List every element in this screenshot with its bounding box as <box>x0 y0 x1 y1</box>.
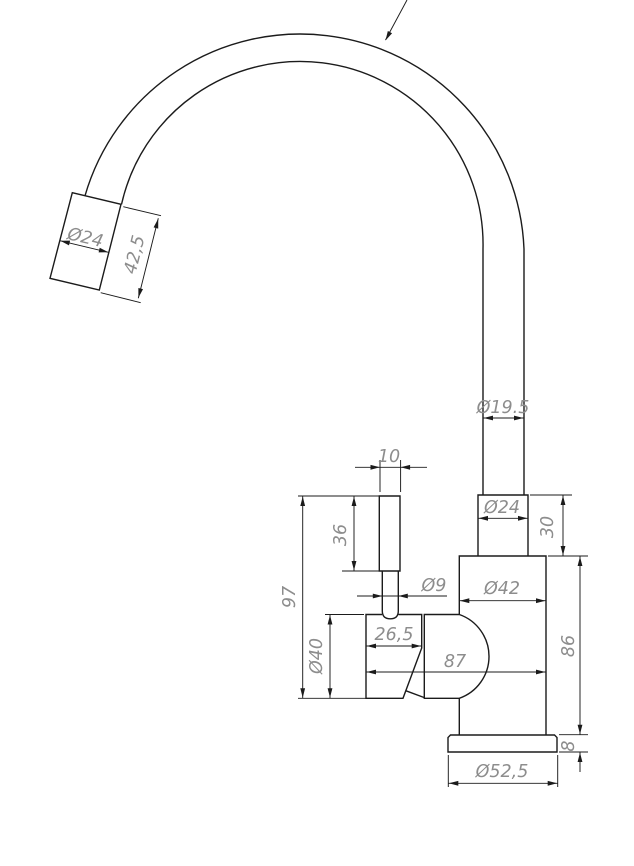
spout-outer-curve <box>85 34 524 495</box>
arrowhead <box>536 598 546 603</box>
arrowhead <box>578 725 583 735</box>
dim-tip-diameter-label: Ø24 <box>64 224 105 252</box>
arrowhead <box>300 497 305 507</box>
arrowhead <box>398 594 408 599</box>
faucet-outline <box>50 34 557 752</box>
arrowhead <box>578 557 583 567</box>
arrowhead <box>578 753 583 763</box>
arrowhead <box>401 465 411 470</box>
spout-inner-curve <box>122 61 484 495</box>
arrowhead <box>300 688 305 698</box>
dim-pin-diameter-label: Ø9 <box>421 576 447 596</box>
faucet-technical-drawing: 10 36 97 Ø40 Ø9 26,5 87 Ø42 Ø24 Ø19.5 30… <box>0 0 634 866</box>
arrowhead <box>352 561 357 571</box>
dim-body-height-label: 86 <box>559 635 579 657</box>
dim-flange-height-label: 8 <box>559 740 579 751</box>
arrowhead <box>536 670 546 675</box>
arrowhead <box>328 615 333 625</box>
dim-lever-width-label: 10 <box>378 447 400 467</box>
arrowhead <box>449 781 459 786</box>
dim-housing-diameter-label: Ø40 <box>307 638 327 675</box>
lever-pin <box>382 571 398 619</box>
dim-tube-diameter-label: Ø19.5 <box>476 398 530 418</box>
base-flange <box>448 735 557 752</box>
arrowhead <box>328 688 333 698</box>
dim-handle-height-label: 97 <box>280 586 300 608</box>
arrowhead <box>561 496 566 506</box>
arrowhead <box>373 594 383 599</box>
arrowhead <box>154 218 161 228</box>
lever-stick <box>379 496 400 571</box>
dim-lever-length-label: 36 <box>331 524 351 546</box>
arrowhead <box>460 598 470 603</box>
leader-arrowhead <box>383 31 392 42</box>
dim-collar-height-label: 30 <box>538 516 558 538</box>
handle-joint-edge <box>406 691 424 698</box>
ext-tip-bottom <box>101 293 141 303</box>
dim-housing-width-label: 26,5 <box>375 625 414 645</box>
extension-lines <box>101 207 588 787</box>
arrowhead <box>548 781 558 786</box>
ext-tip-top <box>123 207 161 216</box>
dim-base-diameter-label: Ø52,5 <box>475 762 529 782</box>
arrowhead <box>352 497 357 507</box>
dim-overall-depth-label: 87 <box>444 652 466 672</box>
arrowhead <box>367 670 377 675</box>
spout-leader <box>383 0 407 42</box>
arrowhead <box>561 546 566 556</box>
dim-body-diameter-label: Ø42 <box>483 579 520 599</box>
dim-collar-diameter-label: Ø24 <box>483 498 520 518</box>
technical-drawing-sheet: 10 36 97 Ø40 Ø9 26,5 87 Ø42 Ø24 Ø19.5 30… <box>0 0 634 866</box>
arrowhead <box>136 288 143 298</box>
